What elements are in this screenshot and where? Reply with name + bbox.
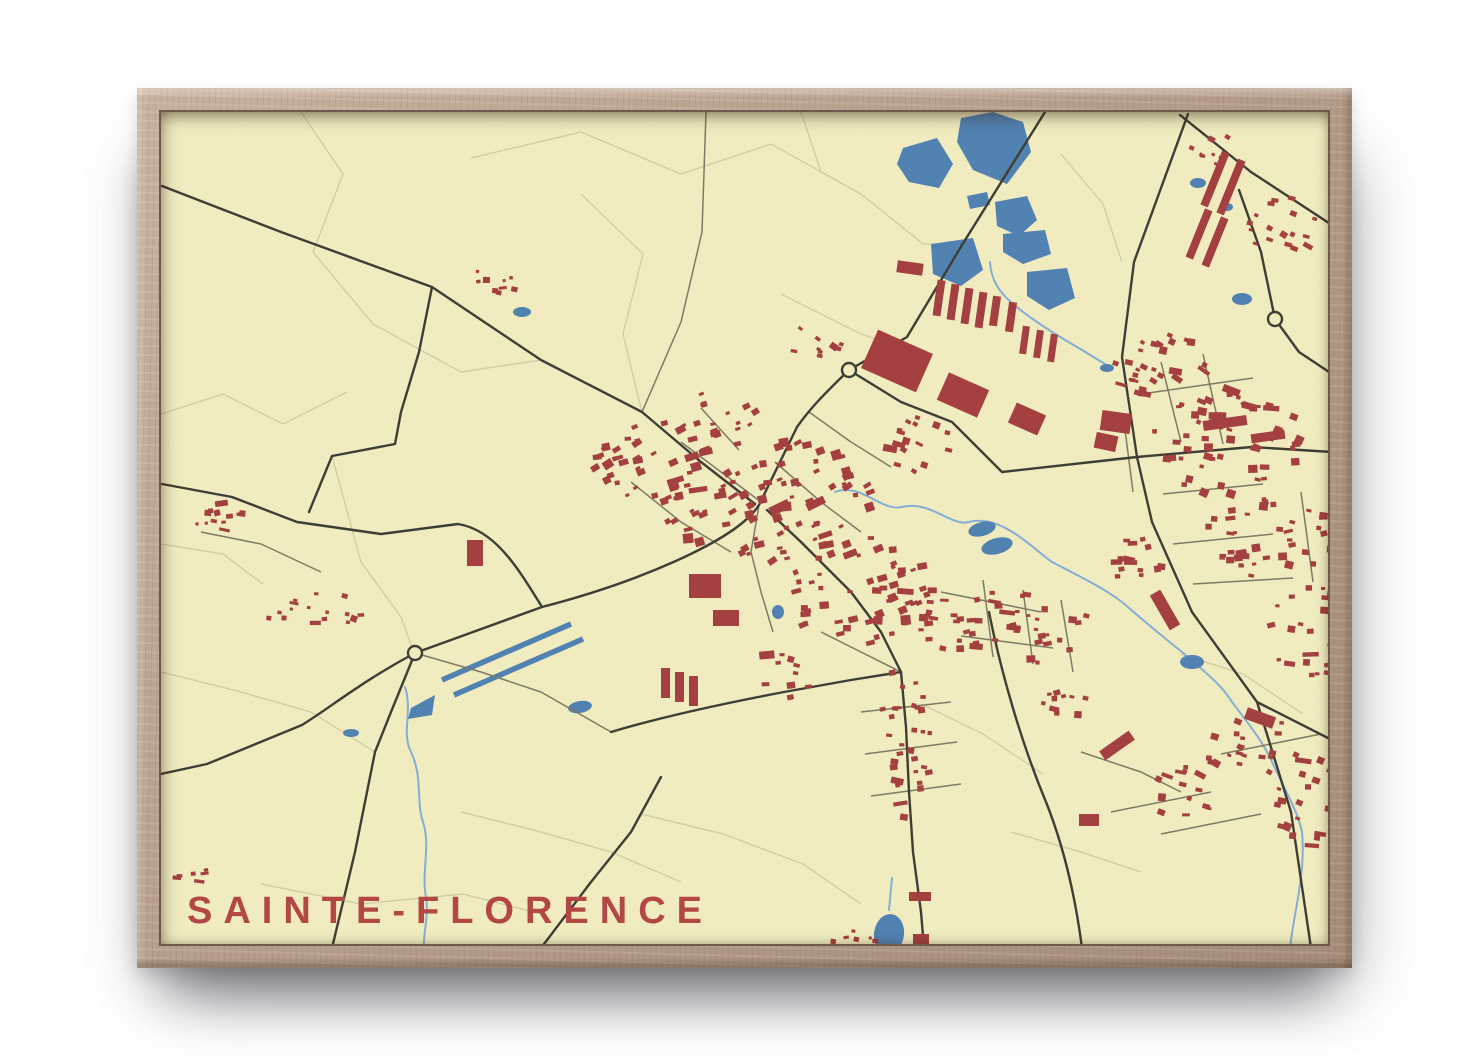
photo-backdrop: { "poster": { "title": "SAINTE-FLORENCE"… [0,0,1480,1058]
city-map [161,112,1330,946]
poster-title: SAINTE-FLORENCE [187,890,713,933]
picture-frame: SAINTE-FLORENCE [137,88,1352,968]
map-print: SAINTE-FLORENCE [159,110,1330,946]
paper-texture [161,112,1330,946]
